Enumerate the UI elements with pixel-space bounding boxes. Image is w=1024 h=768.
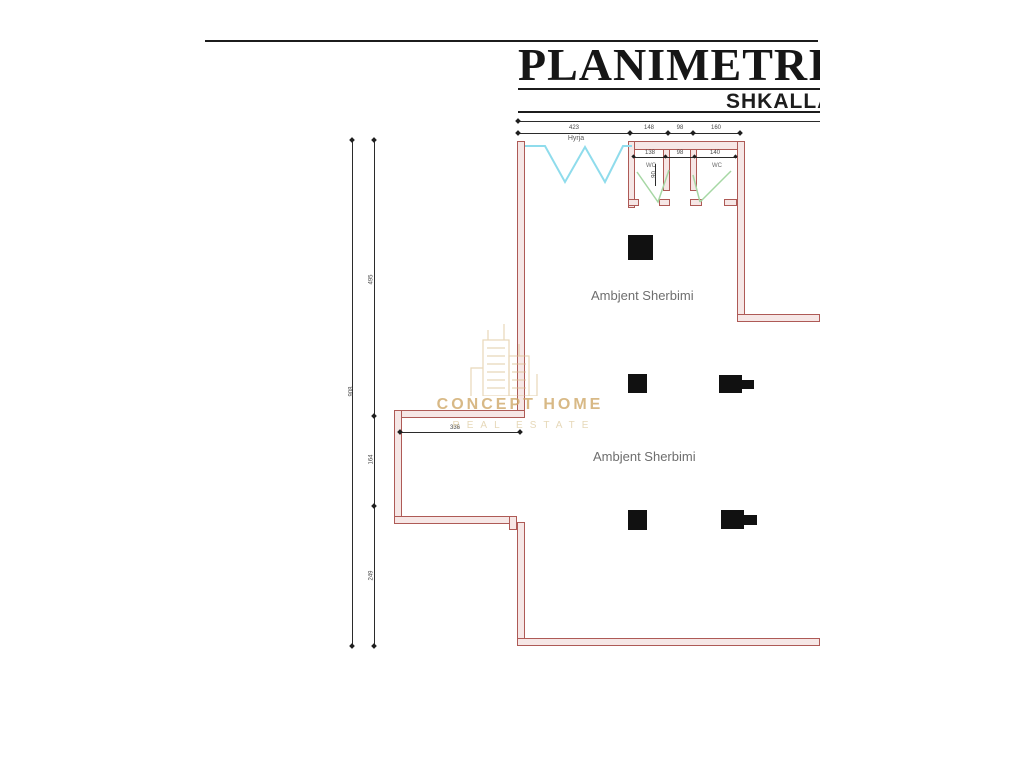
dim-tick	[371, 137, 377, 143]
dim-line-wc	[634, 157, 737, 158]
dim-label: 336	[440, 425, 470, 432]
column-square	[628, 510, 647, 530]
window-zigzag-icon	[525, 146, 632, 182]
dim-tick	[515, 118, 521, 124]
wall-wc-stub	[628, 199, 639, 206]
wall-right-upper	[737, 141, 745, 322]
dim-label: 148	[635, 125, 663, 132]
dim-tick	[349, 137, 355, 143]
door-swing-right-icon	[693, 171, 731, 202]
dim-tick	[371, 643, 377, 649]
wc-right-label: WC	[708, 163, 726, 169]
wall-wc-stub	[690, 199, 702, 206]
wall-bottom	[517, 638, 820, 646]
dim-label: 249	[369, 562, 376, 590]
dim-label: 98	[667, 125, 693, 132]
column-square	[628, 374, 647, 393]
dim-tick	[349, 643, 355, 649]
wall-east-wing	[737, 314, 820, 322]
dim-tick	[627, 130, 633, 136]
room-label-upper: Ambjent Sherbimi	[591, 288, 694, 303]
room-label-lower: Ambjent Sherbimi	[593, 449, 696, 464]
page-title: PLANIMETRIA	[518, 42, 820, 90]
floorplan-canvas: PLANIMETRIA SHKALLA 423 148 98 160 Hyrja…	[0, 0, 1024, 768]
dim-label: 495	[369, 266, 376, 294]
plan-symbols-layer	[0, 0, 1024, 768]
dim-line-bumpout	[400, 432, 522, 433]
wall-left-lower	[517, 522, 525, 646]
page-subtitle-text: SHKALLA	[726, 90, 820, 113]
wall-bumpout-top	[394, 410, 525, 418]
wall-bumpout-left	[394, 410, 402, 524]
subtitle-underline	[518, 111, 820, 113]
wall-left-upper	[517, 141, 525, 417]
column-square	[721, 510, 744, 529]
dim-tick	[515, 130, 521, 136]
dim-label: 90	[652, 166, 659, 184]
page-title-text: PLANIMETRIA	[518, 42, 820, 90]
dim-line-top-overall	[518, 121, 820, 122]
dim-label: 140	[702, 150, 728, 157]
dim-tick	[371, 503, 377, 509]
column-attachment	[744, 515, 757, 525]
dim-tick	[737, 130, 743, 136]
wall-wc-stub	[724, 199, 737, 206]
wall-wc-top	[628, 141, 745, 150]
wall-wc-stub	[659, 199, 670, 206]
wall-wc-left	[628, 141, 635, 208]
column-attachment	[742, 380, 754, 389]
dim-label: 138	[637, 150, 663, 157]
dim-tick	[517, 429, 523, 435]
wall-bumpout-bottom	[394, 516, 516, 524]
dim-label: 160	[702, 125, 730, 132]
column-square	[719, 375, 742, 393]
dim-label: 908	[349, 378, 356, 406]
column-square	[628, 235, 653, 260]
dim-tick	[371, 413, 377, 419]
entrance-label: Hyrja	[558, 135, 594, 142]
dim-label: 98	[668, 150, 692, 157]
wall-bumpout-step	[509, 516, 517, 530]
dim-label: 164	[369, 446, 376, 474]
dim-label: 423	[560, 125, 588, 132]
